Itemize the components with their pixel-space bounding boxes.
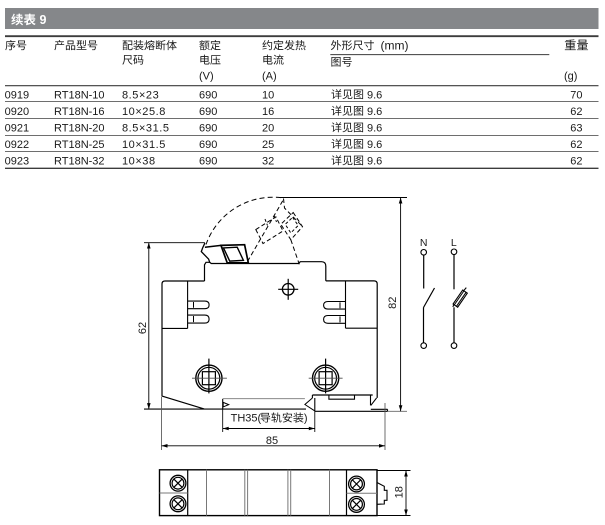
svg-text:9: 9 (40, 13, 47, 27)
svg-text:RT18N-32: RT18N-32 (54, 155, 105, 167)
svg-text:0919: 0919 (5, 89, 29, 101)
svg-text:9.6: 9.6 (367, 139, 382, 151)
svg-text:RT18N-25: RT18N-25 (54, 139, 105, 151)
svg-text:9.6: 9.6 (367, 106, 382, 118)
svg-text:TH35(: TH35( (231, 413, 262, 425)
svg-text:62: 62 (137, 322, 149, 334)
svg-text:16: 16 (262, 106, 274, 118)
svg-text:10: 10 (262, 89, 274, 101)
svg-text:RT18N-10: RT18N-10 (54, 89, 105, 101)
svg-text:690: 690 (199, 106, 217, 118)
svg-text:8.5×23: 8.5×23 (122, 89, 159, 101)
svg-text:20: 20 (262, 122, 274, 134)
svg-text:(V): (V) (199, 71, 214, 83)
svg-text:690: 690 (199, 89, 217, 101)
svg-text:10×38: 10×38 (122, 155, 156, 167)
svg-text:70: 70 (570, 89, 582, 101)
svg-text:(g): (g) (564, 71, 577, 83)
svg-text:9.6: 9.6 (367, 122, 382, 134)
svg-text:690: 690 (199, 139, 217, 151)
svg-text:N: N (420, 237, 428, 249)
svg-text:0920: 0920 (5, 106, 29, 118)
svg-text:(A): (A) (262, 71, 277, 83)
svg-text:10×31.5: 10×31.5 (122, 139, 166, 151)
svg-text:(mm): (mm) (381, 39, 409, 53)
svg-text:8.5×31.5: 8.5×31.5 (122, 122, 170, 134)
svg-text:32: 32 (262, 155, 274, 167)
svg-text:L: L (451, 237, 457, 249)
svg-text:18: 18 (394, 486, 406, 498)
svg-text:62: 62 (570, 139, 582, 151)
svg-text:62: 62 (570, 106, 582, 118)
svg-text:690: 690 (199, 122, 217, 134)
svg-text:690: 690 (199, 155, 217, 167)
svg-text:RT18N-16: RT18N-16 (54, 106, 105, 118)
svg-text:): ) (304, 413, 308, 425)
svg-text:RT18N-20: RT18N-20 (54, 122, 105, 134)
svg-text:25: 25 (262, 139, 274, 151)
svg-text:9.6: 9.6 (367, 155, 382, 167)
svg-text:63: 63 (570, 122, 582, 134)
svg-text:0922: 0922 (5, 139, 29, 151)
svg-text:82: 82 (387, 297, 399, 309)
svg-text:9.6: 9.6 (367, 89, 382, 101)
svg-text:0923: 0923 (5, 155, 29, 167)
svg-text:62: 62 (570, 155, 582, 167)
svg-text:0921: 0921 (5, 122, 29, 134)
svg-text:85: 85 (266, 435, 278, 447)
svg-text:10×25.8: 10×25.8 (122, 106, 166, 118)
